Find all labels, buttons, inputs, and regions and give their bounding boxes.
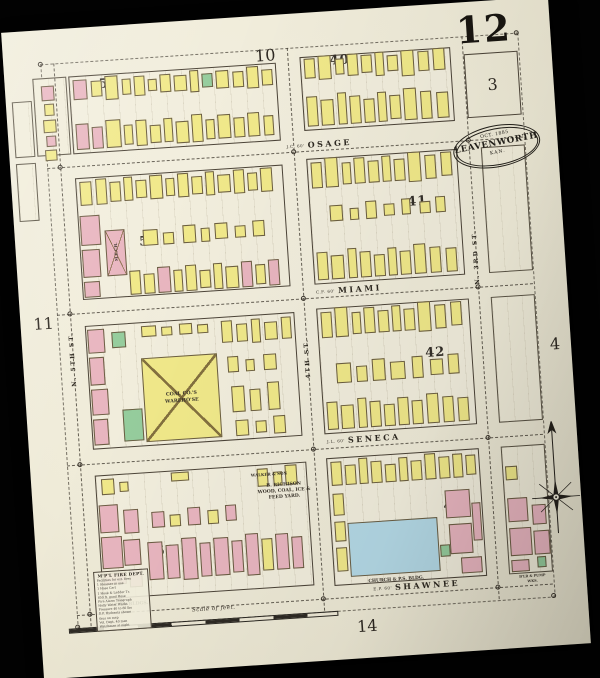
building [275, 533, 290, 570]
building [329, 205, 343, 222]
building [199, 270, 211, 289]
building [123, 177, 134, 202]
building [384, 404, 396, 427]
building [233, 117, 245, 138]
building [399, 250, 412, 275]
partial-city-block [16, 163, 40, 222]
building [432, 48, 445, 71]
building [135, 180, 147, 199]
building [72, 79, 87, 100]
building [430, 358, 444, 375]
building [87, 329, 106, 354]
building [89, 357, 106, 386]
partial-city-block [12, 101, 36, 158]
building [201, 227, 211, 242]
building [225, 266, 239, 289]
scanned-map-photo: 5340524151425043J.C. 60'OSAGEC.F. 60'MIA… [0, 0, 600, 678]
building [442, 396, 455, 423]
building [386, 55, 398, 72]
building [461, 556, 483, 573]
building [341, 162, 351, 185]
building [353, 157, 366, 184]
building [320, 99, 335, 126]
building [401, 198, 411, 215]
building [215, 70, 229, 89]
building [359, 251, 372, 278]
building [336, 362, 352, 383]
building [273, 415, 286, 434]
building [438, 456, 450, 479]
building [356, 365, 368, 382]
building [334, 521, 346, 542]
building [43, 119, 57, 133]
fire-dept-legend: M'P'L FIRE DEPT. Facilities for ext. fir… [93, 568, 152, 632]
building [374, 254, 386, 277]
building [191, 176, 203, 195]
building [411, 400, 424, 425]
building [400, 50, 415, 77]
building [82, 249, 102, 278]
sheet-number: 12 [453, 5, 516, 53]
building [413, 243, 427, 274]
building [255, 420, 267, 433]
building [435, 196, 446, 213]
building [317, 55, 332, 80]
building [101, 536, 124, 569]
building [457, 397, 470, 422]
building [227, 356, 239, 373]
building [320, 312, 333, 339]
building [267, 381, 281, 410]
building [252, 220, 265, 237]
building [434, 304, 447, 329]
building [417, 301, 432, 332]
building [109, 181, 121, 202]
building [291, 536, 304, 569]
adjacent-sheet-box: 3 [464, 51, 522, 118]
building [417, 51, 429, 72]
building [363, 307, 376, 334]
building [234, 225, 246, 238]
building [213, 263, 224, 290]
building [161, 326, 173, 336]
building [537, 556, 547, 568]
building [349, 95, 362, 124]
building [245, 533, 261, 576]
building [217, 114, 232, 139]
building [177, 173, 190, 198]
building [261, 69, 273, 86]
building [385, 464, 397, 483]
building [346, 53, 358, 76]
building [365, 200, 377, 219]
building [411, 356, 423, 379]
building [377, 92, 388, 123]
building [231, 540, 244, 573]
partial-city-block [491, 294, 543, 423]
building [410, 460, 422, 481]
building [93, 419, 110, 446]
building [424, 154, 437, 179]
building [143, 229, 159, 246]
building [324, 157, 339, 188]
building [75, 123, 90, 150]
building [233, 169, 246, 194]
building [326, 401, 339, 430]
building [436, 91, 450, 118]
adjacent-sheet-number-bottom: 14 [356, 616, 378, 636]
building [420, 91, 433, 120]
building [260, 167, 274, 192]
building [79, 181, 93, 206]
building [101, 478, 115, 495]
building [440, 544, 451, 557]
building [367, 160, 379, 183]
building [511, 559, 530, 572]
building [249, 388, 261, 411]
street-width-note: E.P. 60' [373, 585, 392, 591]
adjacent-sheet-number-top: 10 [254, 45, 276, 65]
street-width-note: J.L. 60' [327, 438, 345, 444]
building [306, 96, 319, 127]
building [141, 325, 157, 337]
building [173, 269, 183, 292]
building [41, 86, 55, 102]
building [189, 70, 199, 93]
building [241, 261, 254, 288]
building [225, 504, 237, 521]
building [398, 457, 409, 482]
building [345, 464, 357, 485]
building [347, 517, 440, 577]
building [163, 232, 175, 245]
building [44, 104, 55, 117]
building [391, 305, 402, 332]
building [452, 453, 464, 478]
building [191, 114, 204, 143]
building [119, 481, 129, 492]
building [403, 88, 418, 121]
building [263, 353, 277, 370]
building [357, 397, 368, 428]
building [369, 401, 382, 428]
building [133, 75, 145, 96]
building [143, 273, 155, 294]
building [165, 544, 180, 579]
building [104, 75, 119, 100]
building [390, 361, 406, 380]
building [149, 175, 164, 200]
building [247, 172, 258, 191]
building [45, 149, 58, 161]
building [201, 73, 213, 88]
building [334, 307, 349, 338]
building [383, 203, 395, 216]
building [316, 252, 329, 281]
building [91, 389, 110, 416]
building [263, 115, 274, 136]
building [445, 247, 458, 272]
building [351, 312, 361, 335]
building [122, 408, 144, 441]
building [245, 359, 255, 372]
building [95, 178, 108, 205]
building [175, 121, 189, 144]
building [179, 323, 193, 335]
building [235, 419, 249, 436]
building [310, 162, 323, 189]
building [150, 125, 162, 144]
building [221, 320, 233, 343]
building [330, 461, 343, 486]
building [358, 458, 369, 485]
building [246, 66, 259, 89]
building [205, 119, 215, 140]
building [255, 264, 266, 285]
adjacent-sheet-number-left: 11 [33, 314, 55, 334]
adjacent-sheet-number-right: 4 [549, 334, 560, 354]
building [231, 386, 246, 413]
building [214, 222, 228, 239]
street-width-note: C.F. 60' [316, 288, 335, 294]
building [185, 264, 198, 291]
building [159, 74, 171, 93]
building [105, 119, 122, 148]
building [165, 178, 175, 197]
building [347, 248, 358, 279]
building [363, 98, 376, 123]
building [407, 151, 422, 182]
building [444, 489, 471, 519]
building [123, 509, 140, 534]
building [171, 471, 190, 481]
building [374, 52, 385, 77]
building [197, 324, 209, 334]
building [46, 135, 57, 147]
fire-dept-legend-lines: Facilities for ext. fires1 Steamer in us… [97, 576, 149, 629]
adjacent-sheet-number-top-right: 3 [487, 75, 498, 95]
building [424, 453, 437, 480]
building [84, 281, 101, 298]
building [268, 259, 281, 286]
building [187, 507, 201, 526]
building [465, 454, 476, 475]
building [163, 118, 174, 143]
building [91, 80, 103, 97]
building [331, 255, 346, 280]
building [157, 266, 172, 293]
building [247, 112, 261, 137]
building [124, 124, 134, 145]
building [447, 353, 459, 374]
building [350, 208, 360, 221]
map-sheet: 5340524151425043J.C. 60'OSAGEC.F. 60'MIA… [1, 0, 591, 678]
building [341, 404, 356, 429]
building [213, 537, 230, 576]
building [236, 323, 248, 342]
building [370, 461, 382, 484]
compass-rose-icon [521, 419, 589, 541]
building [389, 95, 402, 120]
building [377, 310, 389, 333]
building [403, 308, 415, 331]
building [169, 514, 181, 527]
building [429, 246, 442, 273]
building [232, 71, 244, 88]
building [181, 537, 199, 580]
building [99, 504, 120, 533]
building [440, 151, 453, 176]
building [111, 331, 126, 348]
building [419, 201, 431, 214]
building [251, 318, 262, 343]
building [264, 321, 278, 340]
building [505, 466, 518, 481]
building [147, 541, 164, 580]
building-annotation: WKS. [527, 579, 538, 584]
building [332, 493, 344, 516]
building [393, 158, 405, 181]
building [360, 54, 372, 73]
building [79, 215, 101, 246]
building [281, 316, 292, 339]
building [372, 358, 386, 381]
building [335, 58, 345, 75]
building [397, 397, 410, 426]
building [123, 539, 142, 566]
building [182, 224, 196, 243]
building [207, 510, 219, 525]
building [381, 155, 392, 182]
building [199, 542, 212, 577]
building [304, 58, 316, 79]
building [449, 523, 474, 554]
building [387, 247, 398, 276]
building [121, 78, 131, 95]
building [92, 126, 104, 149]
building [129, 270, 142, 295]
building [173, 75, 187, 92]
building [426, 393, 440, 424]
building [450, 301, 463, 326]
building [336, 547, 349, 572]
building [148, 79, 158, 92]
building [205, 171, 216, 196]
building [217, 174, 231, 193]
building [261, 538, 274, 571]
street-width-note: J.C. 60' [286, 143, 305, 149]
building [151, 511, 165, 528]
building [135, 119, 148, 146]
